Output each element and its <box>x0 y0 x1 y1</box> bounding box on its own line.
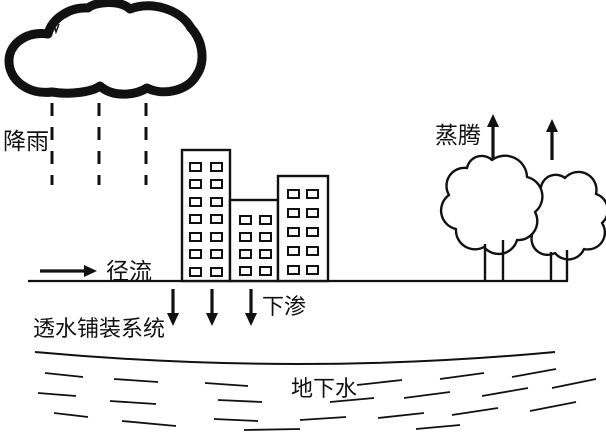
building-window <box>260 233 271 241</box>
building <box>278 176 328 281</box>
buildings <box>182 150 328 281</box>
water-table-line <box>35 352 555 364</box>
infiltration-label: 下渗 <box>262 295 306 320</box>
building-window <box>288 228 299 236</box>
building-window <box>307 247 318 255</box>
groundwater-label: 地下水 <box>291 377 357 402</box>
building-window <box>190 163 201 171</box>
hydrology-diagram: 降雨 径流 下渗 透水铺装系统 地下水 蒸腾 <box>0 0 606 435</box>
building-window <box>260 250 271 258</box>
diagram-svg: 降雨 径流 下渗 透水铺装系统 地下水 蒸腾 <box>0 0 606 435</box>
cloud-icon <box>9 3 202 95</box>
building-window <box>240 267 251 275</box>
groundwater-dash <box>38 393 76 396</box>
groundwater-dash <box>357 380 402 385</box>
groundwater-dash <box>45 373 83 377</box>
groundwater-dash <box>530 402 576 411</box>
building-window <box>211 233 222 241</box>
groundwater-dash <box>214 419 258 421</box>
groundwater-dash <box>218 400 262 402</box>
building-window <box>240 216 251 224</box>
building-window <box>211 180 222 188</box>
building-window <box>288 266 299 274</box>
groundwater-dash <box>552 379 596 388</box>
building-window <box>211 268 222 276</box>
building-window <box>307 266 318 274</box>
building-window <box>288 209 299 217</box>
building-window <box>260 267 271 275</box>
building-window <box>190 233 201 241</box>
transpiration-arrow-head <box>487 114 499 127</box>
building-window <box>190 250 201 258</box>
building-window <box>288 247 299 255</box>
groundwater-dash <box>452 408 498 415</box>
groundwater-dash <box>300 417 346 420</box>
building-window <box>307 228 318 236</box>
building-window <box>211 198 222 206</box>
building-window <box>240 250 251 258</box>
infiltration-arrow-head <box>245 313 257 326</box>
groundwater-dash <box>114 379 158 382</box>
runoff-label: 径流 <box>106 259 152 285</box>
rain-lines <box>52 103 146 185</box>
groundwater-dash <box>440 373 484 379</box>
groundwater-dash <box>54 413 88 417</box>
rainfall-label: 降雨 <box>3 129 49 155</box>
groundwater-dash <box>482 388 528 396</box>
building-window <box>211 250 222 258</box>
groundwater-dash <box>205 383 248 386</box>
building-window <box>190 180 201 188</box>
transpiration-label: 蒸腾 <box>435 123 481 149</box>
building-window <box>240 233 251 241</box>
building-window <box>307 209 318 217</box>
building-window <box>190 215 201 223</box>
tree-canopy-front <box>441 156 542 254</box>
runoff-arrow-head <box>84 265 97 277</box>
groundwater-dash <box>110 401 156 404</box>
groundwater-dash <box>244 429 300 430</box>
building-window <box>190 268 201 276</box>
building-window <box>307 190 318 198</box>
permeable-pavement-label: 透水铺装系统 <box>33 317 165 342</box>
groundwater-dash <box>378 413 424 418</box>
infiltration-arrow-head <box>167 313 179 326</box>
building-window <box>190 198 201 206</box>
groundwater-dash <box>512 369 556 377</box>
infiltration-arrow-head <box>206 313 218 326</box>
groundwater-dash <box>416 425 460 429</box>
groundwater-dash <box>122 421 176 426</box>
building-window <box>288 190 299 198</box>
building-window <box>260 216 271 224</box>
groundwater-dash <box>404 392 450 398</box>
building-window <box>211 163 222 171</box>
transpiration-arrow-head <box>546 119 558 132</box>
building-window <box>211 215 222 223</box>
